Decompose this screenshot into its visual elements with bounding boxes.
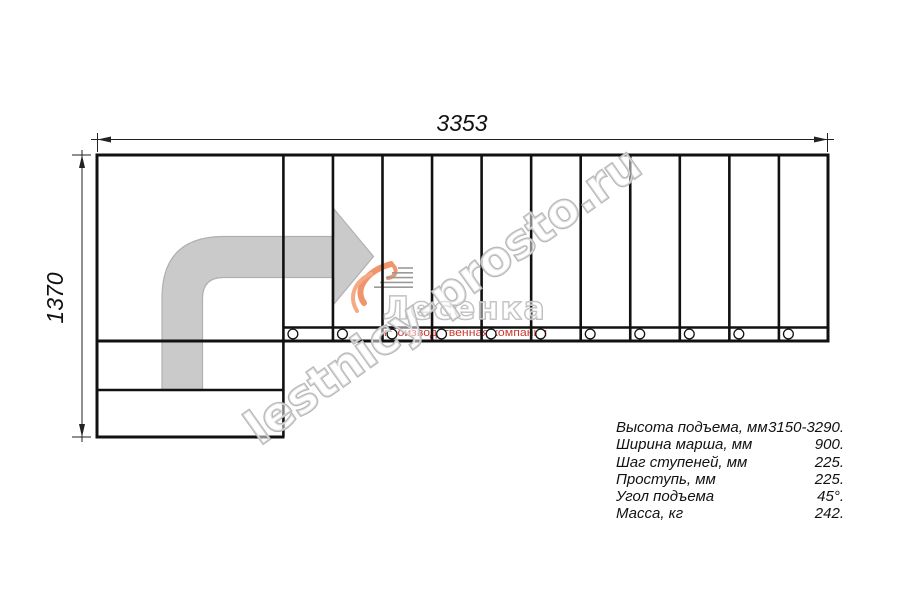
- watermark-text: lestnicy-prosto.ru: [235, 137, 651, 456]
- spec-value: 225.: [815, 471, 844, 488]
- dim-arrow-left: [98, 137, 112, 143]
- spec-row: Угол подъема 45°.: [616, 488, 844, 505]
- spec-label: Высота подъема, мм: [616, 419, 768, 436]
- spec-value: 242.: [815, 505, 844, 522]
- spec-value: 225.: [815, 454, 844, 471]
- spec-row: Высота подъема, мм 3150-3290.: [616, 419, 844, 436]
- spec-row: Проступь, мм 225.: [616, 471, 844, 488]
- tread-circle: [684, 329, 694, 339]
- dimension-height: [72, 150, 91, 442]
- spec-label: Ширина марша, мм: [616, 436, 752, 453]
- spec-row: Ширина марша, мм 900.: [616, 436, 844, 453]
- spec-value: 900.: [815, 436, 844, 453]
- dim-arrow-down: [79, 424, 85, 437]
- tread-circle: [486, 329, 496, 339]
- tread-circle: [734, 329, 744, 339]
- stair-plan-page: производственная компания: [0, 0, 900, 600]
- spec-value: 45°.: [817, 488, 844, 505]
- tread-circle: [585, 329, 595, 339]
- dimension-width-label: 3353: [436, 110, 487, 136]
- specs-table: Высота подъема, мм 3150-3290. Ширина мар…: [616, 419, 844, 523]
- tread-circle: [536, 329, 546, 339]
- tread-circle: [288, 329, 298, 339]
- spec-label: Масса, кг: [616, 505, 683, 522]
- dimension-height-label: 1370: [42, 272, 68, 323]
- spec-label: Проступь, мм: [616, 471, 716, 488]
- spec-value: 3150-3290.: [768, 419, 844, 436]
- tread-circle: [635, 329, 645, 339]
- tread-circle: [784, 329, 794, 339]
- dim-arrow-up: [79, 155, 85, 168]
- spec-row: Масса, кг 242.: [616, 505, 844, 522]
- dim-arrow-right: [814, 137, 828, 143]
- spec-row: Шаг ступеней, мм 225.: [616, 454, 844, 471]
- spec-label: Угол подъема: [616, 488, 714, 505]
- spec-label: Шаг ступеней, мм: [616, 454, 747, 471]
